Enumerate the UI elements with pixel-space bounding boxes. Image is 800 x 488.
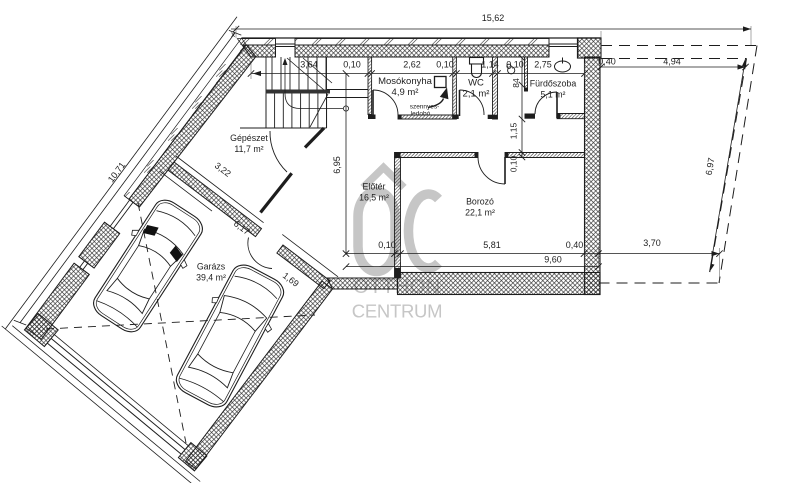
svg-text:0,10: 0,10 xyxy=(378,240,396,250)
svg-text:1,14: 1,14 xyxy=(481,60,499,70)
svg-text:Garázs: Garázs xyxy=(197,262,226,272)
svg-text:Fürdőszoba: Fürdőszoba xyxy=(530,79,577,89)
svg-text:0,40: 0,40 xyxy=(566,240,584,250)
svg-text:5,1 m²: 5,1 m² xyxy=(541,90,566,100)
svg-text:0,10: 0,10 xyxy=(506,60,524,70)
svg-text:x: x xyxy=(231,30,235,39)
svg-text:0,40: 0,40 xyxy=(598,57,616,67)
svg-text:Előtér: Előtér xyxy=(363,182,386,192)
svg-text:5,81: 5,81 xyxy=(483,240,501,250)
svg-text:ledobó: ledobó xyxy=(411,111,431,118)
svg-text:9,60: 9,60 xyxy=(544,255,562,265)
svg-text:0,10: 0,10 xyxy=(509,155,519,172)
svg-text:1,15: 1,15 xyxy=(509,122,519,139)
svg-text:2,1 m²: 2,1 m² xyxy=(463,89,490,100)
svg-text:CENTRUM: CENTRUM xyxy=(352,301,442,322)
svg-text:Mosókonyha: Mosókonyha xyxy=(378,76,433,87)
svg-text:11,7 m²: 11,7 m² xyxy=(234,144,263,154)
svg-text:6,95: 6,95 xyxy=(332,156,342,174)
svg-text:Borozó: Borozó xyxy=(466,197,494,207)
svg-text:2,75: 2,75 xyxy=(534,60,552,70)
svg-text:3,70: 3,70 xyxy=(643,238,661,248)
svg-text:WC: WC xyxy=(468,78,484,89)
svg-text:15,62: 15,62 xyxy=(482,13,505,23)
svg-text:16,5 m²: 16,5 m² xyxy=(359,193,389,203)
svg-text:22,1 m²: 22,1 m² xyxy=(465,208,495,218)
svg-text:Gépészet: Gépészet xyxy=(230,133,268,143)
svg-text:4,94: 4,94 xyxy=(663,57,681,67)
svg-text:0,10: 0,10 xyxy=(436,60,454,70)
svg-text:szennyes-: szennyes- xyxy=(410,104,440,111)
svg-text:84: 84 xyxy=(511,78,521,88)
svg-text:2,62: 2,62 xyxy=(403,60,421,70)
svg-text:4,9 m²: 4,9 m² xyxy=(392,87,419,98)
svg-text:3,64: 3,64 xyxy=(300,60,318,70)
svg-text:39,4 m²: 39,4 m² xyxy=(196,273,226,283)
svg-text:0,10: 0,10 xyxy=(343,60,361,70)
